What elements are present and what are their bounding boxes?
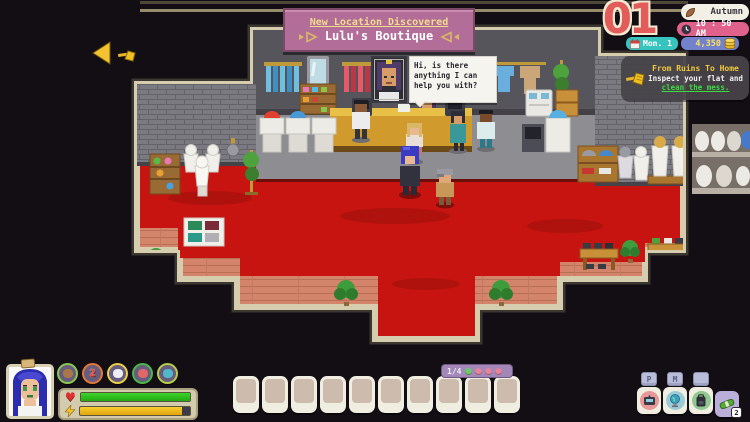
left-arrow-icon xyxy=(93,42,110,64)
white-cabinet xyxy=(526,90,552,116)
hotbar-slot-9[interactable] xyxy=(465,376,491,413)
hotbar-page-label: 1/4 xyxy=(447,367,461,376)
page-dot-1 xyxy=(465,368,472,375)
right-hat-shelf xyxy=(578,146,618,182)
page-dot-4 xyxy=(495,368,502,375)
slot-item-area xyxy=(294,379,314,403)
hotbar-page-dots xyxy=(465,368,502,375)
season-display: Autumn xyxy=(681,4,749,20)
phone-button[interactable] xyxy=(637,387,661,414)
mail-badge: 2 xyxy=(731,407,742,418)
banner-arrow-icon xyxy=(295,31,319,43)
backpack-icon xyxy=(695,394,707,407)
globe-icon xyxy=(669,394,681,408)
left-goods-shelf xyxy=(150,154,180,194)
hotbar-slot-6[interactable] xyxy=(378,376,404,413)
offscreen-quest-indicator xyxy=(90,40,138,72)
quest-description: Inspect your flat and clean the mess. xyxy=(648,74,743,92)
season-label: Autumn xyxy=(710,7,743,17)
dialogue-text: Hi, is there anything I can help you wit… xyxy=(414,61,477,90)
slot-item-area xyxy=(352,379,372,403)
location-banner: New Location Discovered Lulu's Boutique xyxy=(283,8,475,52)
slot-item-area xyxy=(410,379,430,403)
energy-bar-fill xyxy=(80,407,182,415)
bird-buff-icon[interactable] xyxy=(157,363,178,384)
calendar-icon xyxy=(630,39,640,49)
status-bars: ♥ xyxy=(58,388,198,420)
energy-bar xyxy=(79,406,191,416)
money-amount: 4,350 xyxy=(695,39,721,49)
date-label: Mon. 1 xyxy=(643,39,672,48)
npc-kid[interactable] xyxy=(436,169,454,209)
folded-shirt-display xyxy=(184,218,224,246)
npc-dialogue[interactable]: Hi, is there anything I can help you wit… xyxy=(371,56,497,103)
slot-item-area xyxy=(439,379,459,403)
heart-icon: ♥ xyxy=(65,392,76,402)
hotbar-slots xyxy=(233,376,520,413)
pottery-shelf xyxy=(692,124,750,194)
quest-title: From Ruins To Home xyxy=(648,64,743,74)
player-portrait[interactable] xyxy=(6,364,54,419)
blue-scarf-rack xyxy=(264,62,302,92)
slot-item-area xyxy=(323,379,343,403)
map-button[interactable] xyxy=(663,387,687,414)
quest-link[interactable]: clean the mess. xyxy=(662,83,730,92)
buff-icons: 2 xyxy=(57,363,178,384)
hotbar-slot-5[interactable] xyxy=(349,376,375,413)
health-bar-fill xyxy=(81,393,190,401)
dialogue-bubble: Hi, is there anything I can help you wit… xyxy=(409,56,497,103)
page-dot-2 xyxy=(475,368,482,375)
autumn-leaf-icon xyxy=(685,7,696,18)
clock-display: 10 : 50 AM xyxy=(677,22,749,36)
banner-subtitle: Lulu's Boutique xyxy=(319,29,439,44)
slot-item-area xyxy=(497,379,517,403)
inventory-keycap xyxy=(693,372,709,386)
time-label: 10 : 50 AM xyxy=(696,19,745,39)
mace-buff-icon[interactable] xyxy=(57,363,78,384)
floor-edge xyxy=(256,179,595,182)
slot-item-area xyxy=(236,379,256,403)
paw-buff-icon[interactable] xyxy=(107,363,128,384)
coins-icon xyxy=(724,38,736,49)
hotbar-slot-10[interactable] xyxy=(494,376,520,413)
hotbar-slot-3[interactable] xyxy=(291,376,317,413)
health-bar xyxy=(80,392,191,402)
energy-icon xyxy=(65,405,75,417)
shoe-table-left xyxy=(580,243,618,270)
game-screen: New Location Discovered Lulu's Boutique xyxy=(0,0,750,422)
clock-icon xyxy=(681,24,692,35)
money-display: 4,350 xyxy=(681,37,739,50)
page-dot-3 xyxy=(485,368,492,375)
slot-item-area xyxy=(265,379,285,403)
hotbar-slot-8[interactable] xyxy=(436,376,462,413)
portrait-clip-icon xyxy=(21,359,36,369)
phone-icon xyxy=(643,395,656,406)
speaker-portrait xyxy=(371,56,407,103)
quest-tracker[interactable]: From Ruins To Home Inspect your flat and… xyxy=(621,56,749,100)
banner-arrow-icon xyxy=(439,31,463,43)
hotbar-slot-7[interactable] xyxy=(407,376,433,413)
slot-item-area xyxy=(468,379,488,403)
date-display: Mon. 1 xyxy=(626,37,678,50)
fish-buff-icon[interactable] xyxy=(132,363,153,384)
hotbar-slot-4[interactable] xyxy=(320,376,346,413)
phone-keycap: P xyxy=(641,372,657,386)
slot-item-area xyxy=(381,379,401,403)
hotbar-page-indicator[interactable]: 1/4 xyxy=(441,364,513,378)
map-keycap: M xyxy=(667,372,683,386)
broom-icon xyxy=(625,69,645,87)
exp-buff-icon[interactable]: 2 xyxy=(82,363,103,384)
banner-title: New Location Discovered xyxy=(285,16,473,29)
hotbar-slot-2[interactable] xyxy=(262,376,288,413)
inventory-button[interactable] xyxy=(689,387,713,414)
broom-icon xyxy=(118,51,135,61)
hotbar-slot-1[interactable] xyxy=(233,376,259,413)
